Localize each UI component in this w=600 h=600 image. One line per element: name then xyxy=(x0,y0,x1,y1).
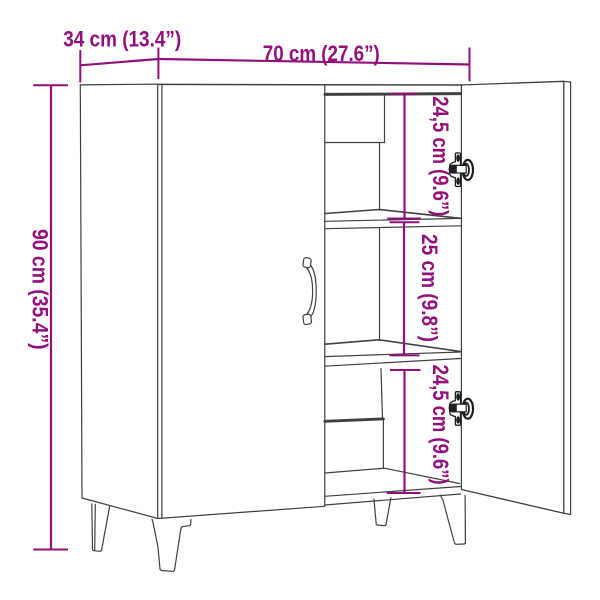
svg-text:90 cm (35.4”): 90 cm (35.4”) xyxy=(27,229,52,350)
svg-text:70 cm (27.6”): 70 cm (27.6”) xyxy=(263,41,380,66)
svg-text:34 cm (13.4”): 34 cm (13.4”) xyxy=(63,27,181,52)
svg-text:24,5 cm (9.6”): 24,5 cm (9.6”) xyxy=(428,96,453,216)
svg-text:25 cm (9.8”): 25 cm (9.8”) xyxy=(417,234,442,342)
svg-text:24,5 cm (9.6”): 24,5 cm (9.6”) xyxy=(428,365,453,485)
